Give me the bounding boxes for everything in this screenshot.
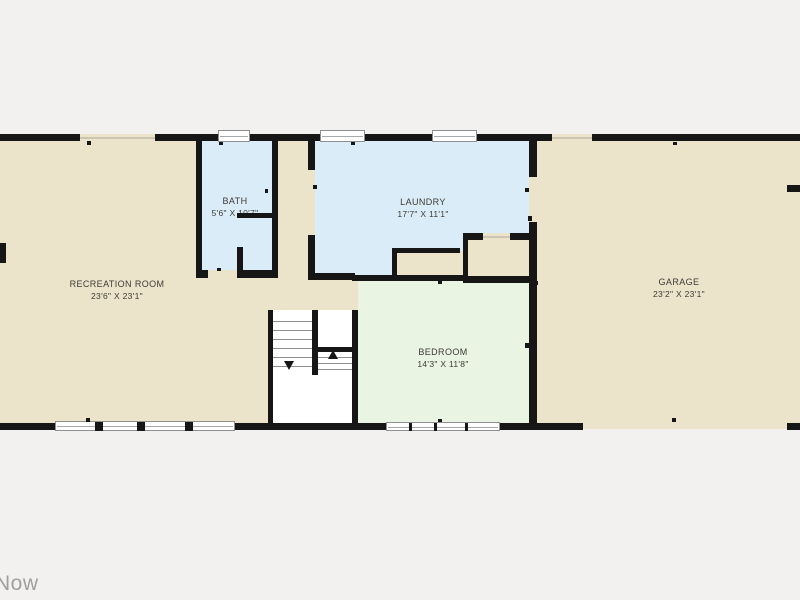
wall-segment [592, 134, 800, 141]
threshold-line [552, 137, 592, 139]
window [55, 421, 235, 431]
window [386, 422, 500, 431]
watermark-text: Now [0, 572, 39, 596]
door-pivot-marker [673, 142, 677, 145]
wall-segment [463, 233, 483, 240]
wall-segment [352, 275, 463, 281]
wall-segment [237, 270, 278, 278]
door-pivot-marker [528, 216, 532, 221]
window [218, 130, 250, 142]
door-pivot-marker [199, 189, 202, 193]
recreation-room-dims: 23'6" X 23'1" [37, 292, 197, 301]
wall-segment [365, 134, 432, 141]
bedroom-name: BEDROOM [393, 347, 493, 357]
wall-segment [272, 134, 278, 278]
wall-segment [787, 185, 800, 192]
wall-segment [155, 134, 218, 141]
wall-segment [392, 248, 460, 253]
wall-segment [308, 134, 315, 170]
recreation-room-name: RECREATION ROOM [37, 279, 197, 289]
door-pivot-marker [525, 343, 529, 348]
window [320, 130, 365, 142]
wall-segment [463, 233, 468, 281]
window-pier [434, 423, 437, 431]
door-pivot-marker [672, 418, 676, 422]
wall-segment [0, 243, 6, 263]
floor-plan: RECREATION ROOM 23'6" X 23'1" BATH 5'6" … [0, 0, 800, 600]
wall-segment [308, 273, 355, 280]
bedroom-label: BEDROOM 14'3" X 11'8" [393, 347, 493, 369]
window-pier [185, 422, 193, 431]
door-pivot-marker [438, 419, 442, 422]
door-pivot-marker [217, 268, 221, 271]
recreation-room-label: RECREATION ROOM 23'6" X 23'1" [37, 279, 197, 301]
door-pivot-marker [219, 142, 223, 145]
laundry-dims: 17'7" X 11'1" [373, 210, 473, 219]
window [432, 130, 477, 142]
stair-down-arrow [284, 361, 294, 370]
closet-floor [468, 239, 529, 276]
utility-nook-floor [397, 251, 463, 275]
wall-segment [477, 134, 552, 141]
wall-segment [463, 276, 537, 283]
door-pivot-marker [86, 418, 90, 422]
wall-segment [312, 310, 318, 375]
wall-segment [500, 423, 583, 430]
garage-dims: 23'2" X 23'1" [629, 290, 729, 299]
bedroom-dims: 14'3" X 11'8" [393, 360, 493, 369]
laundry-name: LAUNDRY [373, 197, 473, 207]
door-pivot-marker [313, 185, 317, 189]
threshold-line [80, 137, 155, 139]
window-pier [409, 423, 412, 431]
garage-name: GARAGE [629, 277, 729, 287]
wall-segment [268, 310, 273, 430]
bath-name: BATH [200, 196, 270, 206]
door-pivot-marker [351, 142, 355, 145]
garage-label: GARAGE 23'2" X 23'1" [629, 277, 729, 299]
wall-segment [196, 270, 208, 278]
wall-segment [352, 310, 358, 430]
window-pier [95, 422, 103, 431]
wall-segment [237, 213, 278, 218]
wall-segment [510, 233, 537, 240]
door-pivot-marker [525, 188, 529, 192]
wall-segment [529, 134, 537, 177]
window-pier [465, 423, 468, 431]
wall-segment [235, 423, 386, 430]
wall-segment [0, 423, 55, 430]
laundry-label: LAUNDRY 17'7" X 11'1" [373, 197, 473, 219]
wall-segment [529, 222, 537, 430]
door-pivot-marker [438, 281, 442, 284]
wall-segment [787, 423, 800, 430]
threshold-line [483, 236, 510, 238]
door-pivot-marker [534, 281, 538, 285]
garage-door-opening-floor [583, 423, 787, 429]
window-pier [137, 422, 145, 431]
stair-up-arrow [328, 350, 338, 359]
door-pivot-marker [265, 189, 268, 193]
wall-segment [0, 134, 80, 141]
door-pivot-marker [87, 141, 91, 145]
